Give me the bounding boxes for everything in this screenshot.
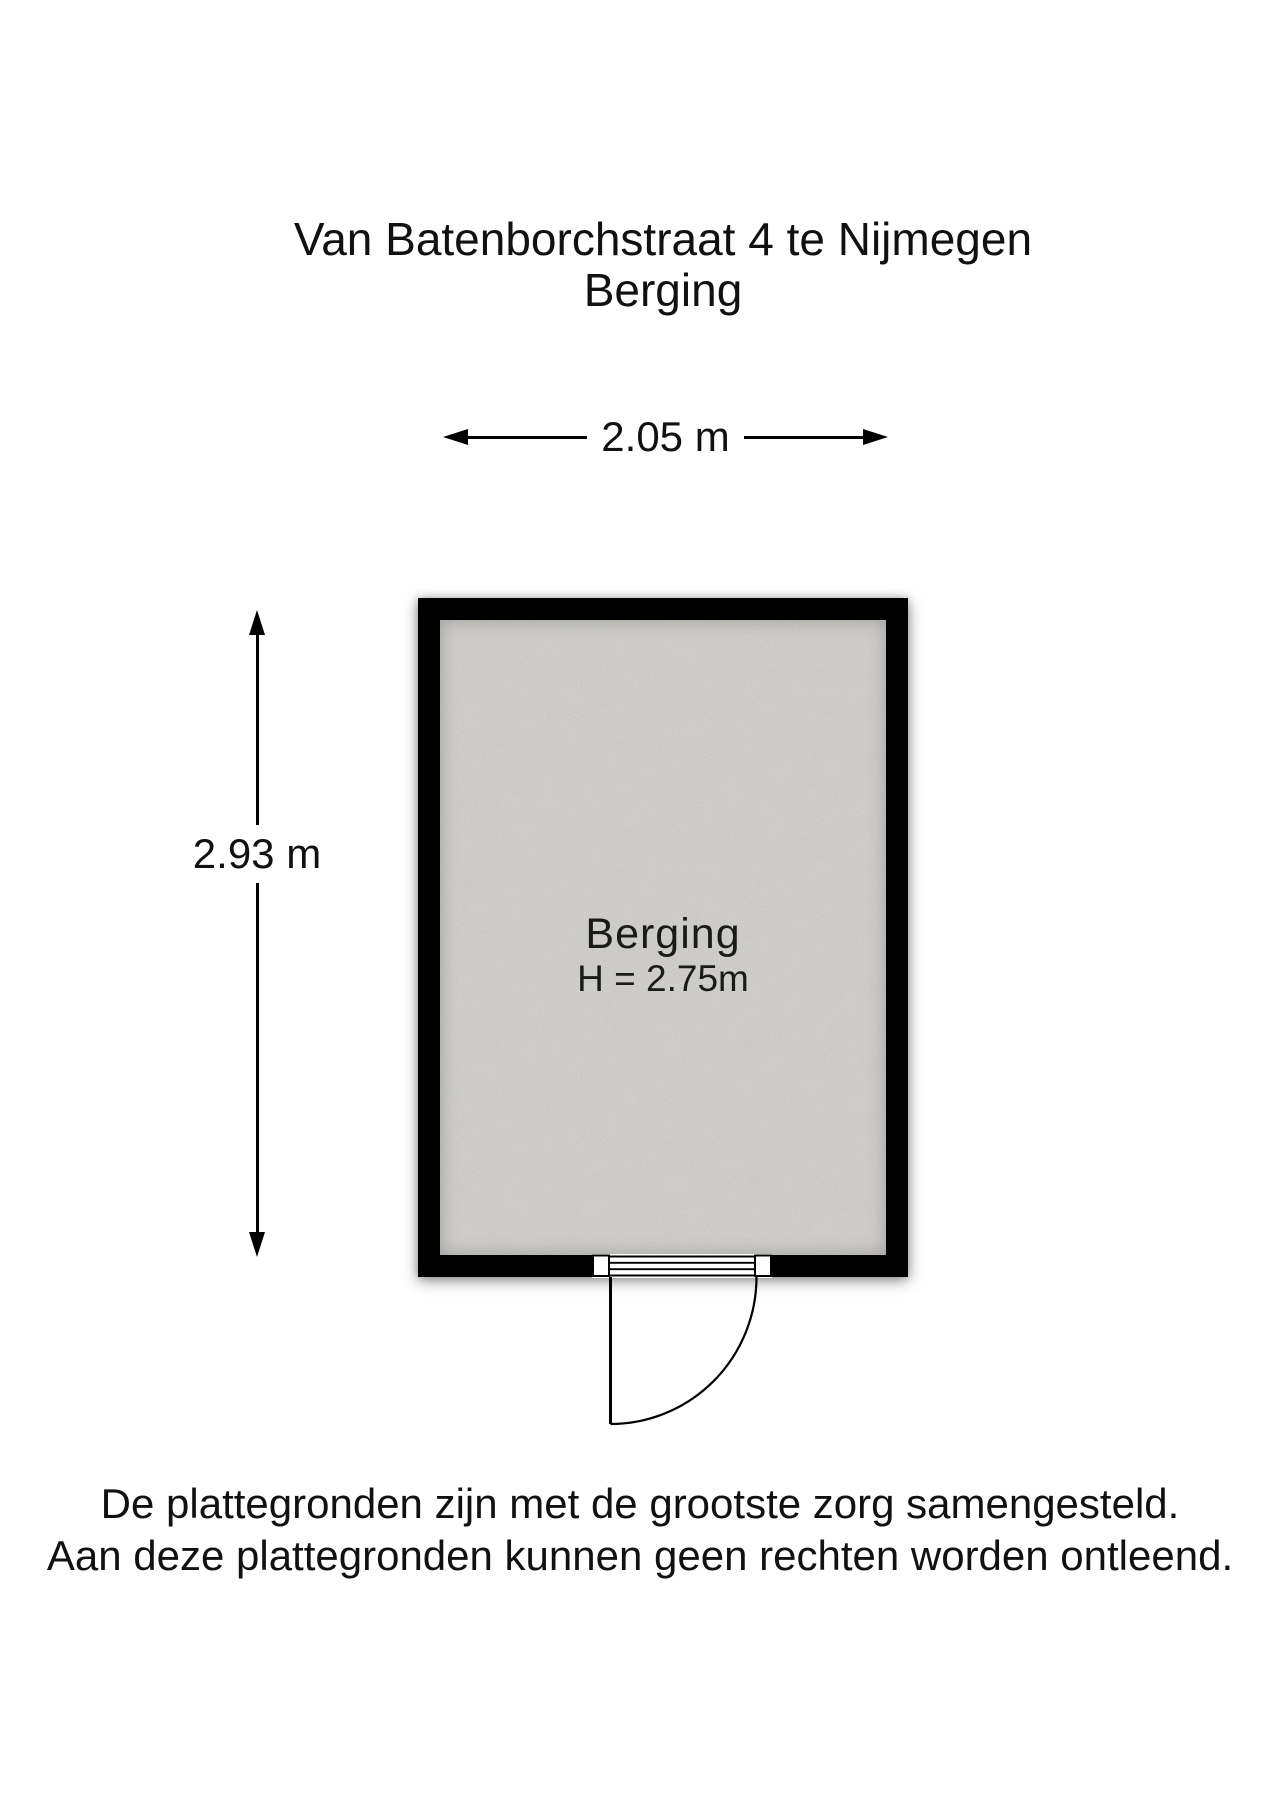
plan-title-room-type: Berging [23,265,1280,316]
room-floor: Berging H = 2.75m [440,620,886,1255]
height-dimension: 2.93 m [180,610,334,1257]
door-post-right [755,1256,771,1277]
dimension-line [744,436,863,439]
room-name-label: Berging [440,910,886,958]
plan-title-address: Van Batenborchstraat 4 te Nijmegen [23,214,1280,265]
dimension-line [256,883,259,1232]
disclaimer: De plattegronden zijn met de grootste zo… [0,1478,1280,1582]
room-ceiling-height-label: H = 2.75m [440,958,886,1000]
dimension-arrow-left-icon [443,429,468,445]
door-post-left [593,1256,609,1277]
door-swing-arc [611,1277,757,1424]
dimension-arrow-right-icon [863,429,888,445]
height-dimension-label: 2.93 m [193,825,321,883]
dimension-arrow-down-icon [249,1232,265,1257]
room-label-group: Berging H = 2.75m [440,910,886,1000]
dimension-arrow-up-icon [249,610,265,635]
room-berging: Berging H = 2.75m [418,598,908,1277]
plan-title: Van Batenborchstraat 4 te Nijmegen Bergi… [23,214,1280,316]
disclaimer-line-2: Aan deze plattegronden kunnen geen recht… [0,1530,1280,1582]
door [570,1240,800,1440]
floorplan-page: Van Batenborchstraat 4 te Nijmegen Bergi… [0,0,1280,1810]
width-dimension-label: 2.05 m [587,414,743,460]
disclaimer-line-1: De plattegronden zijn met de grootste zo… [0,1478,1280,1530]
width-dimension: 2.05 m [443,414,888,460]
door-threshold [609,1257,755,1276]
dimension-line [256,635,259,825]
dimension-line [468,436,587,439]
